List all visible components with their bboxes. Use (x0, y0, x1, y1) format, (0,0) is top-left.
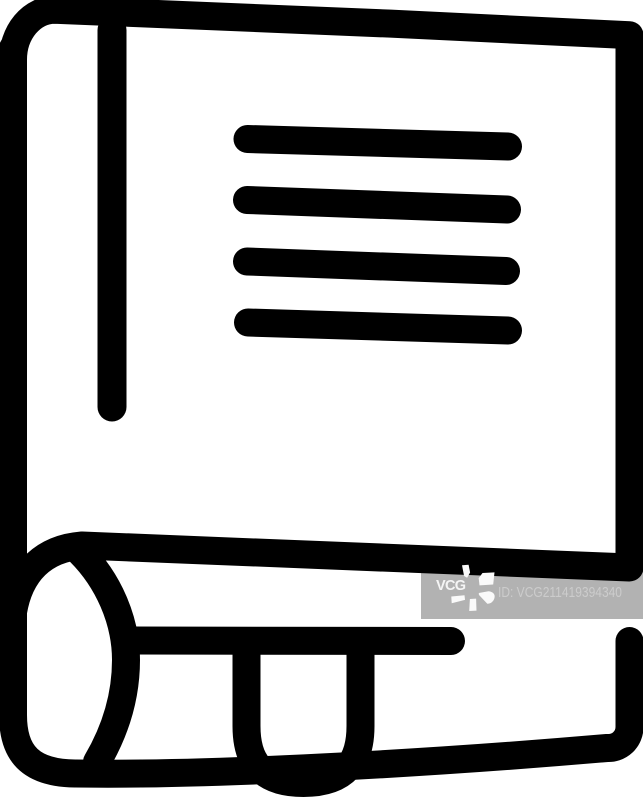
svg-text:ID: VCG211419394340: ID: VCG211419394340 (498, 584, 622, 601)
svg-text:VCG: VCG (436, 578, 466, 594)
